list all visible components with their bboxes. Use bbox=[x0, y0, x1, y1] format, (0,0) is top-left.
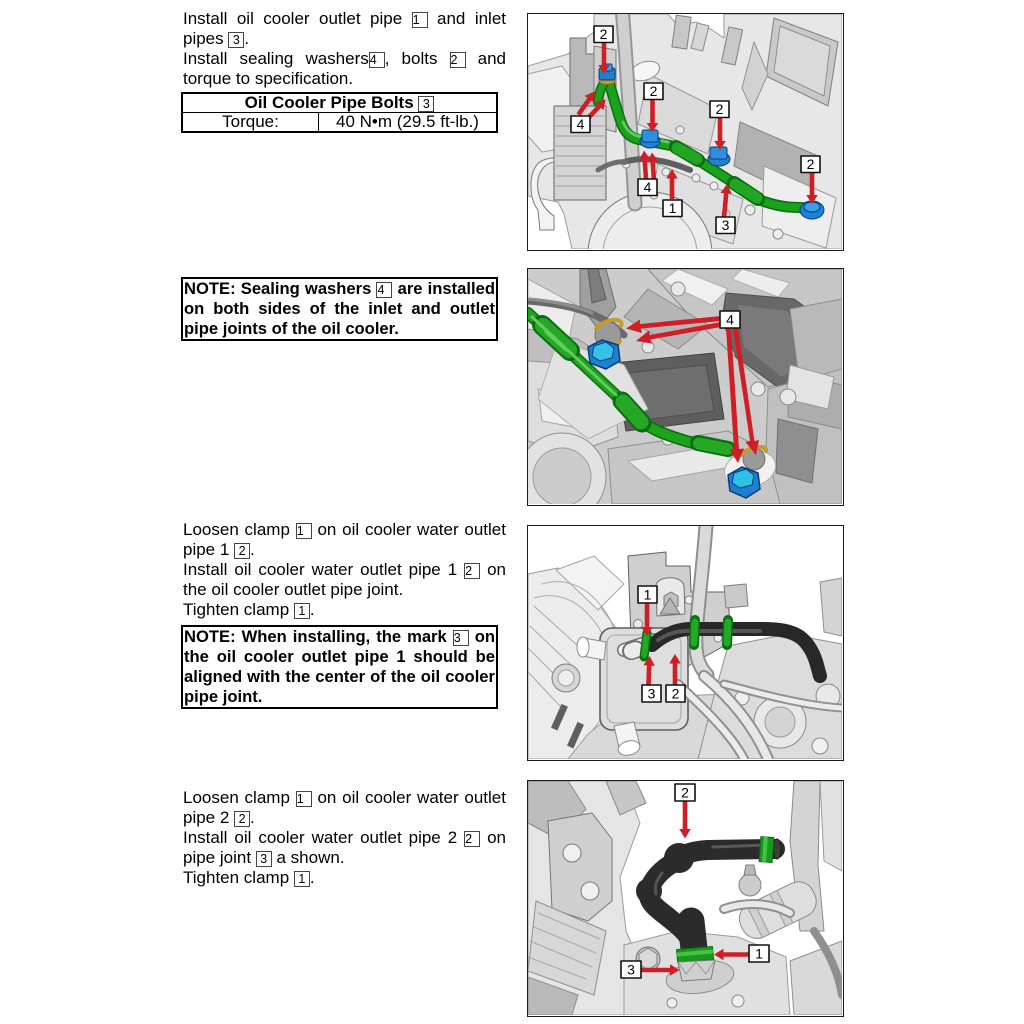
svg-text:3: 3 bbox=[627, 962, 635, 978]
svg-text:2: 2 bbox=[650, 83, 658, 99]
svg-text:3: 3 bbox=[648, 686, 656, 702]
svg-text:4: 4 bbox=[726, 312, 734, 328]
svg-text:2: 2 bbox=[716, 101, 724, 117]
svg-text:3: 3 bbox=[722, 217, 730, 233]
svg-text:1: 1 bbox=[669, 200, 677, 216]
svg-text:1: 1 bbox=[755, 946, 763, 962]
svg-text:4: 4 bbox=[577, 116, 585, 132]
svg-text:2: 2 bbox=[807, 156, 815, 172]
svg-text:1: 1 bbox=[644, 587, 652, 603]
svg-text:4: 4 bbox=[644, 179, 652, 195]
svg-text:2: 2 bbox=[681, 785, 689, 801]
svg-text:2: 2 bbox=[672, 686, 680, 702]
svg-text:2: 2 bbox=[600, 26, 608, 42]
